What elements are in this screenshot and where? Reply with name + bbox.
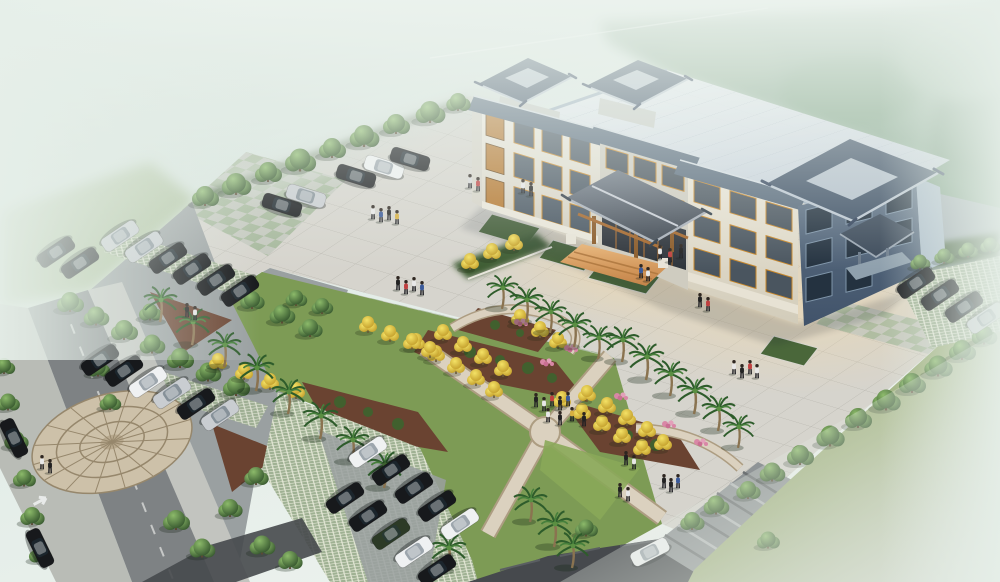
aerial-render-svg <box>0 0 1000 582</box>
rendering-canvas <box>0 0 1000 582</box>
